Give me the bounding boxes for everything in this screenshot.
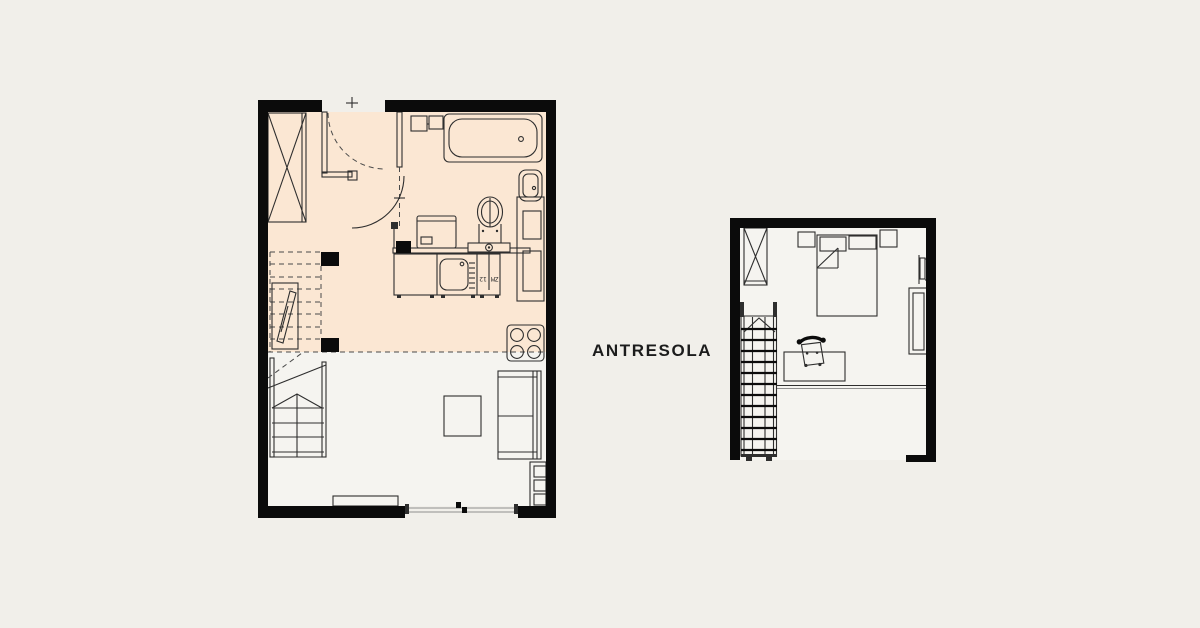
- living-room-zone: [268, 352, 546, 506]
- wall-post: [396, 241, 411, 253]
- floorplan-canvas: ZM 12: [0, 0, 1200, 628]
- mezzanine-label: ANTRESOLA: [592, 341, 712, 361]
- kitchen-bath-zone: [268, 112, 546, 352]
- mezzanine-plan: [730, 218, 936, 462]
- main-floor-plan: ZM 12: [258, 97, 556, 518]
- pipe-riser: [391, 222, 398, 229]
- mezzanine-zone: [740, 228, 926, 460]
- kitchen-unit-label: ZM 12: [479, 275, 499, 283]
- floorplan-page: ZM 12: [0, 0, 1200, 628]
- door-handle-mark: [456, 502, 461, 508]
